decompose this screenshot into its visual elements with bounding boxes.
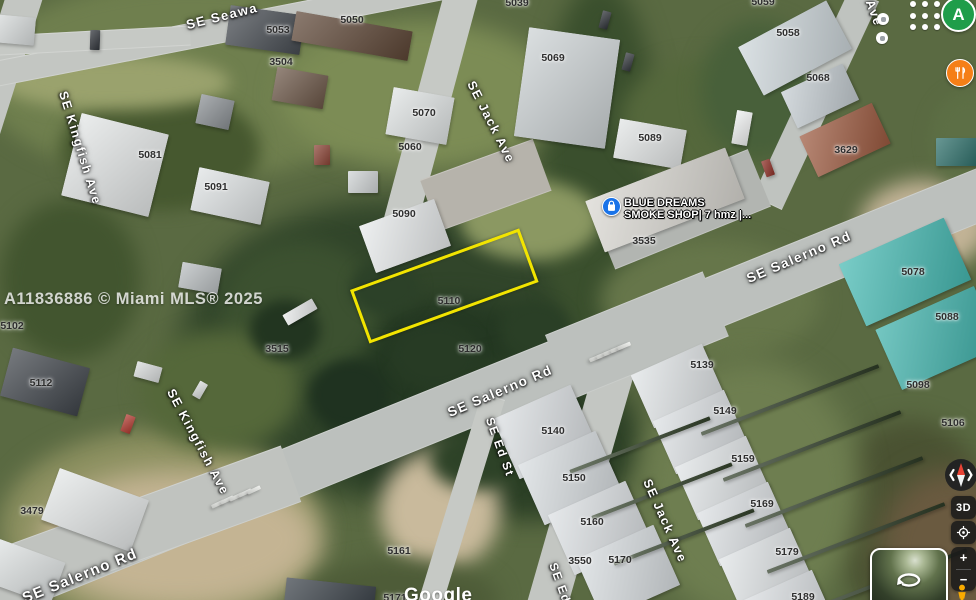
parcel-label-3535: 3535 (632, 235, 655, 247)
restaurant-poi-marker[interactable] (946, 59, 974, 87)
parcel-label-5081: 5081 (138, 149, 161, 161)
parcel-label-5053: 5053 (266, 24, 289, 36)
street-label: SE Salerno Rd (744, 228, 853, 286)
parcel-label-5091: 5091 (204, 181, 227, 193)
parcel-label-5140: 5140 (541, 425, 564, 437)
parcel-label-5058: 5058 (776, 27, 799, 39)
parcel-label-5112: 5112 (30, 377, 53, 389)
parcel-label-5059: 5059 (751, 0, 774, 8)
parcel-label-5089: 5089 (638, 132, 661, 144)
street-label: SE Jack Ave (640, 477, 689, 565)
parcel-label-5110: 5110 (438, 295, 461, 307)
parcel-label-5139: 5139 (690, 359, 713, 371)
street-label: SE Salerno Rd (445, 362, 554, 420)
pegman-icon[interactable] (951, 583, 973, 600)
parcel-label-5106: 5106 (941, 417, 964, 429)
restaurant-icon (952, 65, 968, 81)
parcel-label-5160: 5160 (580, 516, 603, 528)
shopping-bag-icon (602, 197, 621, 216)
parcel-label-3629: 3629 (834, 144, 857, 156)
parcel-label-5159: 5159 (731, 453, 754, 465)
compass-icon (944, 458, 976, 492)
apps-grid-icon[interactable] (910, 1, 942, 32)
parcel-label-5069: 5069 (541, 52, 564, 64)
street-label: SE Kingfish Ave (164, 387, 232, 498)
parcel-label-5070: 5070 (412, 107, 435, 119)
parcel-label-5161: 5161 (387, 545, 410, 557)
parcel-label-3479: 3479 (20, 505, 43, 517)
my-location-button[interactable] (951, 521, 976, 544)
parcel-label-5179: 5179 (775, 546, 798, 558)
parcel-label-5098: 5098 (906, 379, 929, 391)
satellite-map[interactable]: 5053505035045039505950605070506950895058… (0, 0, 976, 600)
parcel-label-5068: 5068 (806, 72, 829, 84)
street-label: SE Ed St (483, 415, 517, 478)
parcel-label-5078: 5078 (901, 266, 924, 278)
poi-dot-marker[interactable] (876, 32, 888, 44)
street-label: SE Jack Ave (464, 79, 517, 165)
3d-button[interactable]: 3D (951, 496, 976, 519)
zoom-in-button[interactable]: + (951, 549, 976, 567)
parcel-label-3504: 3504 (269, 56, 292, 68)
rotate-icon (894, 569, 924, 591)
zoom-divider (956, 569, 971, 570)
street-view-preview[interactable] (870, 548, 948, 600)
parcel-label-5060: 5060 (398, 141, 421, 153)
street-label: SE Kingfish Ave (56, 89, 104, 206)
parcel-label-5039: 5039 (505, 0, 528, 9)
street-label: SE Seawa (185, 0, 260, 32)
compass-control[interactable] (944, 458, 976, 492)
parcel-label-5189: 5189 (791, 591, 814, 600)
parcel-label-5170: 5170 (608, 554, 631, 566)
poi-dot-marker[interactable] (877, 13, 889, 25)
parcel-label-5169: 5169 (750, 498, 773, 510)
parcel-label-5090: 5090 (392, 208, 415, 220)
parcel-label-5149: 5149 (713, 405, 736, 417)
poi-blue-dreams-smoke-shop[interactable]: BLUE DREAMS SMOKE SHOP| 7 hmz |... (602, 197, 751, 221)
parcel-label-5088: 5088 (935, 311, 958, 323)
parcel-label-5102: 5102 (0, 320, 23, 332)
parcel-label-3515: 3515 (265, 343, 288, 355)
poi-name-line1: BLUE DREAMS (624, 197, 751, 209)
google-logo: Google (404, 585, 472, 600)
mls-watermark: A11836886 © Miami MLS® 2025 (4, 290, 263, 309)
parcel-label-5050: 5050 (340, 14, 363, 26)
my-location-icon (956, 525, 971, 540)
parcel-label-5120: 5120 (458, 343, 481, 355)
parcel-label-3550: 3550 (568, 555, 591, 567)
street-label: SE Salerno Rd (20, 545, 140, 600)
parcel-label-5150: 5150 (562, 472, 585, 484)
poi-name-line2: SMOKE SHOP| 7 hmz |... (624, 209, 751, 221)
